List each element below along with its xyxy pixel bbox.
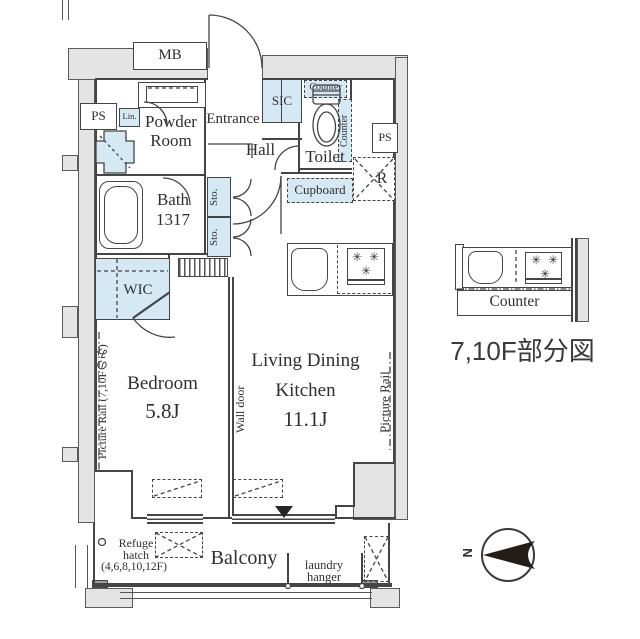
refuge-hatch-label-3: (4,6,8,10,12F) bbox=[94, 561, 174, 573]
picture-rail-left-label: Picture Rail (7,10Fのみ) bbox=[95, 328, 110, 476]
bedroom-ceiling-light bbox=[152, 479, 202, 498]
storage-upper: Sto. bbox=[207, 177, 231, 217]
shoe-closet-label: SIC bbox=[263, 94, 301, 108]
balcony-side-wall-left bbox=[75, 545, 88, 588]
shoe-closet: SIC bbox=[262, 79, 302, 123]
pipe-space-left: PS bbox=[80, 103, 117, 130]
cupboard-label: Cupboard bbox=[288, 183, 352, 197]
side-counter-label: Counter bbox=[458, 294, 571, 310]
ldk-label-2: Kitchen bbox=[248, 381, 363, 401]
exterior-tab-1 bbox=[62, 155, 78, 171]
balcony-equipment-left bbox=[155, 532, 203, 558]
exterior-tab-3 bbox=[62, 447, 78, 462]
refuge-hatch-mark bbox=[99, 539, 106, 546]
stove bbox=[347, 248, 385, 280]
toilet-bowl-inner bbox=[318, 112, 336, 142]
laundry-hanger-label-2: hanger bbox=[298, 571, 350, 584]
pipe-space-right: PS bbox=[372, 123, 398, 153]
exterior-block-bottomright bbox=[370, 588, 400, 608]
pipe-space-left-label: PS bbox=[81, 109, 116, 123]
compass-north-label: N bbox=[461, 544, 475, 562]
storage-door-arc bbox=[233, 219, 251, 237]
entrance-door-arc bbox=[209, 15, 262, 68]
wall bbox=[298, 168, 352, 170]
wall bbox=[353, 462, 355, 507]
exterior-wall-right-step bbox=[353, 462, 395, 520]
kitchen-sink bbox=[291, 248, 328, 291]
neighbor-wall-stub-top bbox=[62, 0, 69, 20]
toilet-counter-top-label: Counter bbox=[305, 83, 346, 94]
meter-box: MB bbox=[133, 42, 207, 70]
compass-icon bbox=[482, 529, 535, 581]
toilet-label: Toilet bbox=[300, 148, 350, 166]
wall bbox=[131, 470, 133, 519]
washer-label: W bbox=[96, 139, 134, 155]
refrigerator-label: R bbox=[372, 171, 392, 188]
ldk-label-1: Living Dining bbox=[248, 351, 363, 371]
refrigerator-space: R bbox=[353, 157, 395, 201]
balcony-label: Balcony bbox=[205, 548, 283, 569]
bedroom-size-label: 5.8J bbox=[120, 400, 205, 422]
ldk-ceiling-light bbox=[233, 479, 283, 498]
wall bbox=[95, 78, 208, 80]
storage-door-arc bbox=[233, 179, 251, 197]
wall bbox=[335, 505, 337, 519]
storage-upper-label: Sto. bbox=[208, 178, 230, 216]
ldk-door-arc bbox=[233, 176, 281, 224]
vanity-bowl bbox=[146, 86, 198, 103]
storage-door-arc bbox=[233, 198, 251, 216]
refuge-hatch-label-2: hatch bbox=[110, 549, 162, 562]
entrance-label: Entrance bbox=[204, 112, 262, 128]
balcony-wall-left bbox=[93, 523, 95, 585]
ldk-window bbox=[232, 514, 335, 524]
bath-label: Bath bbox=[146, 191, 200, 209]
side-stove-base bbox=[525, 279, 562, 284]
side-wall-gray bbox=[577, 238, 589, 322]
exterior-tab-2 bbox=[62, 306, 78, 338]
picture-rail-right-label: Picture Rail bbox=[377, 352, 393, 452]
ldk-size-label: 11.1J bbox=[248, 408, 363, 430]
exterior-wall-topright bbox=[262, 55, 408, 79]
storage-lower: Sto. bbox=[207, 217, 231, 257]
side-stove bbox=[525, 252, 562, 279]
powder-room-label-1: Powder bbox=[133, 113, 209, 131]
walk-in-closet-label: WIC bbox=[110, 283, 166, 299]
bath-size-label: 1317 bbox=[146, 211, 200, 229]
wall-door-label: Wall door bbox=[233, 382, 248, 436]
shelf bbox=[178, 258, 228, 277]
walk-in-closet: WIC bbox=[95, 258, 170, 320]
hall-label: Hall bbox=[233, 141, 288, 159]
toilet-bowl bbox=[313, 104, 340, 146]
wall bbox=[95, 253, 207, 255]
storage-lower-label: Sto. bbox=[208, 218, 230, 256]
bathtub-inner bbox=[104, 186, 138, 244]
toilet-counter-top: Counter bbox=[304, 80, 347, 98]
cupboard: Cupboard bbox=[287, 178, 353, 203]
wall bbox=[95, 174, 204, 176]
stove-base bbox=[347, 280, 385, 285]
side-view-title: 7,10F部分図 bbox=[430, 338, 615, 365]
storage-door-arc bbox=[233, 238, 251, 256]
wall bbox=[281, 172, 352, 174]
side-kitchen-sink bbox=[468, 251, 503, 284]
bedroom-label: Bedroom bbox=[120, 374, 205, 394]
wall bbox=[353, 462, 395, 464]
pipe-space-right-label: PS bbox=[373, 131, 397, 144]
bedroom-window bbox=[147, 514, 203, 524]
floorplan-canvas: MB PS Lin. SIC Counter Counter PS R Cupb… bbox=[0, 0, 640, 639]
meter-box-label: MB bbox=[134, 48, 206, 64]
wall bbox=[335, 505, 355, 507]
powder-room-label-2: Room bbox=[133, 132, 209, 150]
balcony-equipment-right bbox=[364, 536, 389, 582]
bedroom-door-arc bbox=[133, 318, 175, 337]
handrail bbox=[120, 592, 372, 599]
side-counter-band: Counter bbox=[457, 290, 572, 316]
